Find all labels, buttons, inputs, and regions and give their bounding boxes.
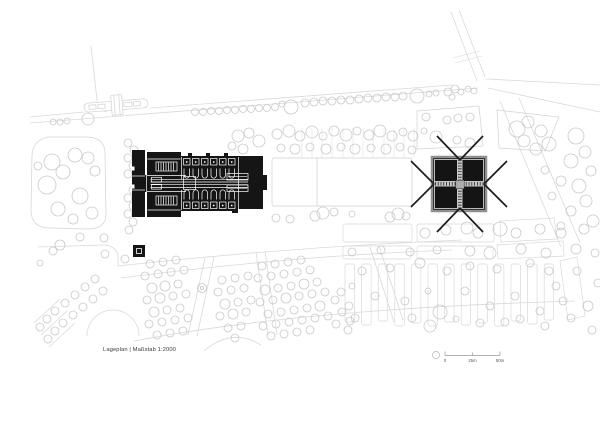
scale-label-end: 50m — [496, 358, 505, 363]
scale-label-mid: 25m — [468, 358, 477, 363]
scale-label-zero: 0 — [444, 358, 447, 363]
allotment-strips — [343, 218, 585, 326]
orchard-grid-lines — [302, 128, 414, 158]
north-symbol-icon — [433, 352, 440, 359]
tram-platform — [83, 93, 148, 118]
scale-bar: 0 25m 50m — [433, 352, 505, 364]
fountain — [198, 284, 207, 293]
plan-caption: Lageplan | Maßstab 1:2000 — [103, 347, 176, 353]
northeast-trees — [421, 113, 556, 155]
park-paths — [34, 240, 575, 351]
allotment-trees — [346, 258, 600, 334]
roads — [30, 10, 600, 247]
main-building — [132, 150, 268, 217]
site-plan-page: Lageplan | Maßstab 1:2000 0 25m 50m — [0, 0, 600, 424]
east-trees — [541, 128, 599, 230]
church-building — [411, 136, 507, 232]
kiosk-building — [133, 245, 145, 257]
site-plan-drawing: Lageplan | Maßstab 1:2000 0 25m 50m — [0, 0, 600, 424]
